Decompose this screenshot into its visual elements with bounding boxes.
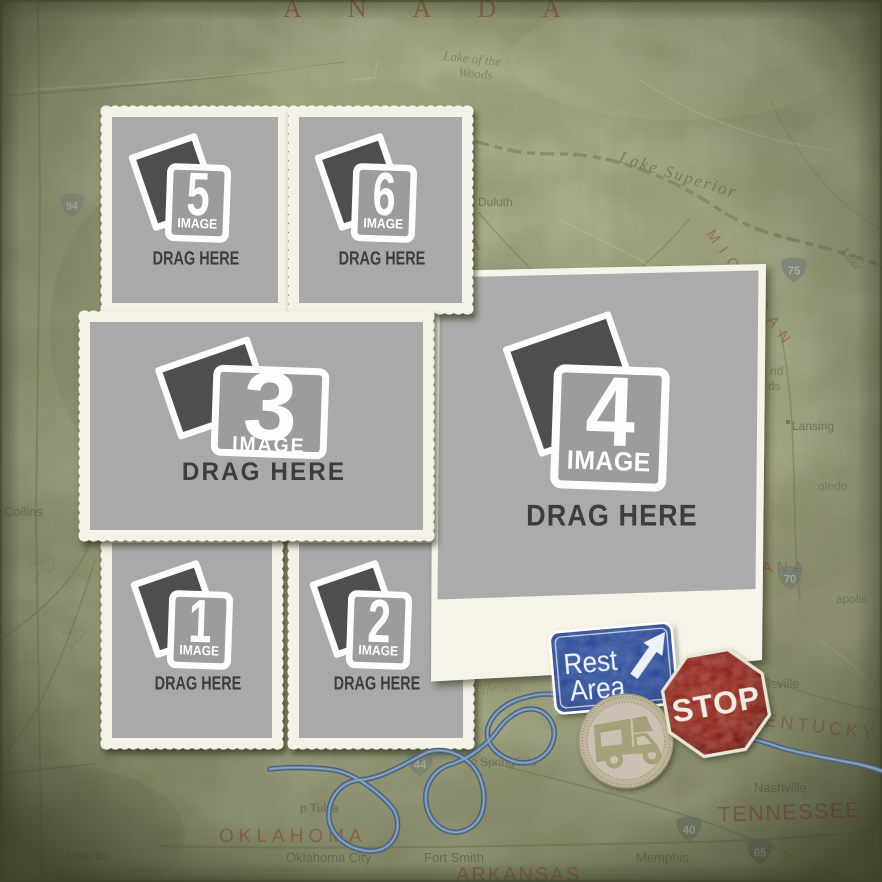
svg-text:IMAGE: IMAGE	[358, 642, 398, 658]
svg-text:IMAGE: IMAGE	[232, 432, 306, 458]
svg-text:DRAG HERE: DRAG HERE	[155, 674, 242, 695]
svg-text:DRAG HERE: DRAG HERE	[339, 249, 426, 270]
svg-text:IMAGE: IMAGE	[179, 642, 219, 658]
svg-text:IMAGE: IMAGE	[566, 445, 651, 478]
svg-text:DRAG HERE: DRAG HERE	[526, 500, 698, 533]
svg-text:DRAG HERE: DRAG HERE	[334, 674, 421, 695]
svg-text:DRAG HERE: DRAG HERE	[153, 249, 240, 270]
svg-text:DRAG HERE: DRAG HERE	[182, 458, 346, 486]
svg-text:IMAGE: IMAGE	[177, 215, 217, 231]
svg-text:IMAGE: IMAGE	[363, 215, 403, 231]
